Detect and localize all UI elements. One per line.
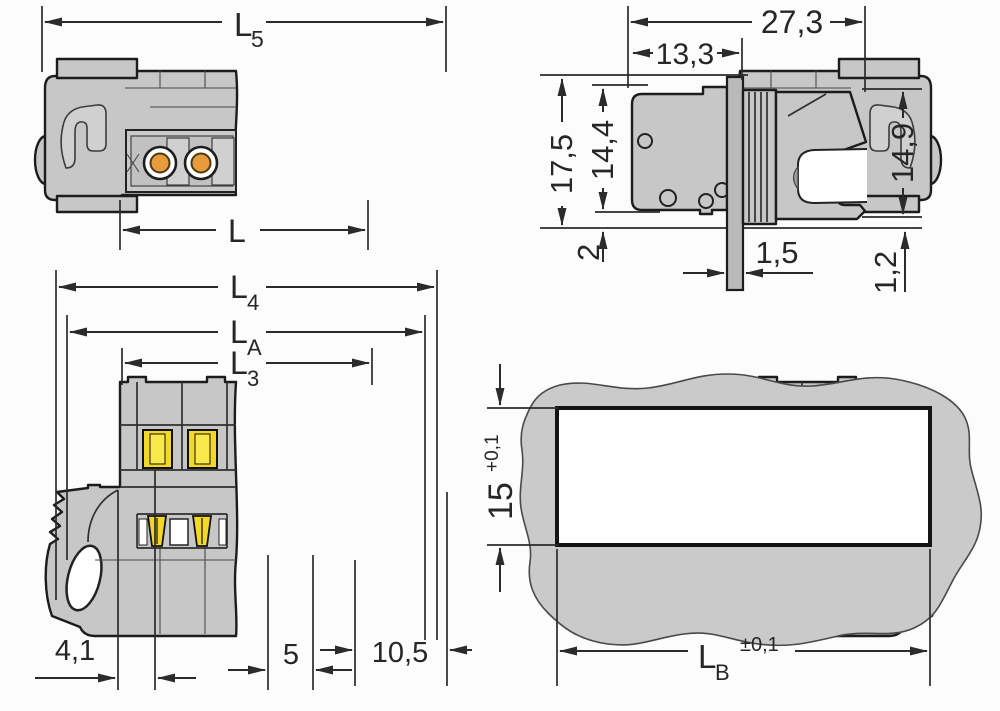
dim-label-13-3: 13,3 bbox=[656, 38, 714, 71]
dim-label-l3-sub: 3 bbox=[247, 366, 259, 391]
panel-cutout-view: 15 +0,1 L B ±0,1 bbox=[482, 364, 981, 686]
dim-label-14-9: 14,9 bbox=[885, 123, 920, 183]
dim-label-l3: L bbox=[230, 345, 248, 381]
dim-label-l5: L bbox=[234, 6, 252, 43]
dim-label-1-5: 1,5 bbox=[755, 235, 798, 270]
dim-label-1-2: 1,2 bbox=[868, 251, 903, 294]
dim-label-lb-tol: ±0,1 bbox=[740, 634, 779, 656]
dim-label-17-5: 17,5 bbox=[544, 134, 579, 194]
dim-label-lb: L bbox=[698, 638, 716, 675]
rib-section bbox=[743, 90, 776, 224]
technical-drawing-canvas: L 5 L 27,3 bbox=[0, 0, 1000, 711]
dim-label-lb-sub: B bbox=[715, 660, 730, 685]
dim-label-l4: L bbox=[230, 269, 248, 305]
dim-label-l: L bbox=[228, 213, 246, 249]
cutout-rectangle bbox=[557, 408, 930, 545]
dim-label-27-3: 27,3 bbox=[761, 4, 823, 40]
dim-label-5: 5 bbox=[283, 639, 299, 671]
dim-label-l5-sub: 5 bbox=[251, 26, 264, 52]
dim-label-l4-sub: 4 bbox=[247, 290, 259, 315]
dim-label-15-tol: +0,1 bbox=[482, 434, 503, 472]
dim-label-10-5: 10,5 bbox=[372, 637, 428, 669]
drawing-svg: L 5 L 27,3 bbox=[0, 0, 1000, 711]
dim-label-14-4: 14,4 bbox=[585, 120, 620, 180]
mounting-flange bbox=[727, 77, 743, 290]
dim-label-4-1: 4,1 bbox=[55, 635, 95, 667]
dim-label-2: 2 bbox=[571, 244, 606, 261]
dim-label-la-sub: A bbox=[247, 335, 262, 360]
dim-label-15: 15 bbox=[482, 482, 520, 520]
latch-notch bbox=[798, 149, 867, 203]
side-front-block bbox=[632, 87, 727, 214]
side-view: 27,3 13,3 17,5 14,4 14,9 2 1,2 1,5 bbox=[540, 4, 922, 294]
